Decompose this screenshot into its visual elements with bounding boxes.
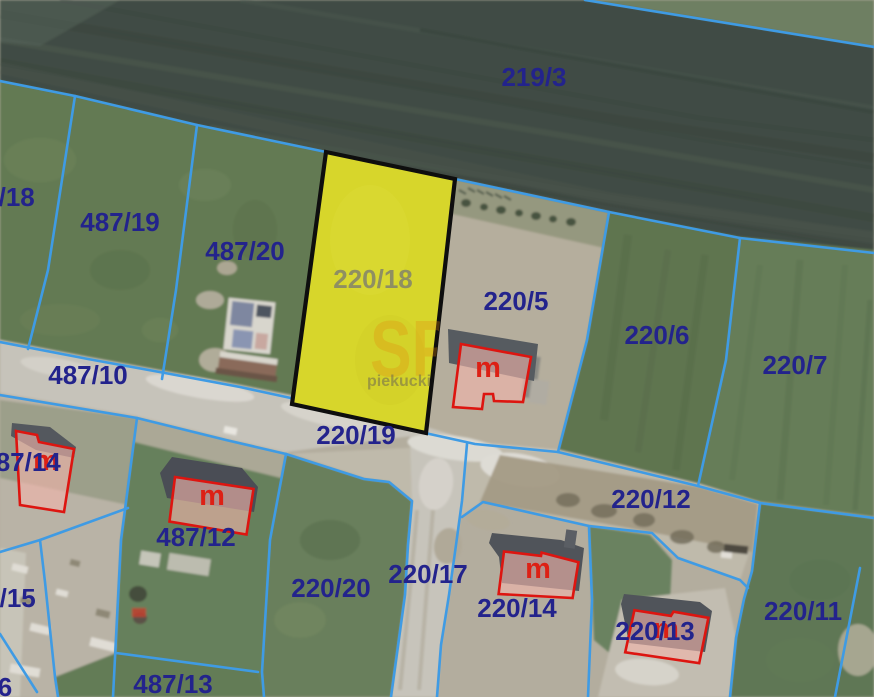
svg-text:487/13: 487/13 [133,669,213,697]
svg-text:220/11: 220/11 [764,596,842,626]
svg-text:220/7: 220/7 [762,350,827,380]
svg-text:m: m [199,480,225,512]
svg-text:220/20: 220/20 [291,573,371,603]
svg-text:m: m [475,352,501,384]
svg-text:219/3: 219/3 [501,62,566,92]
svg-text:220/13: 220/13 [615,616,695,646]
svg-text:220/14: 220/14 [477,593,557,623]
svg-text:6: 6 [0,672,12,697]
svg-text:220/18: 220/18 [333,264,413,294]
svg-text:487/14: 487/14 [0,447,61,477]
svg-text:220/19: 220/19 [316,420,396,450]
svg-text:220/5: 220/5 [483,286,548,316]
svg-text:piekucki: piekucki [367,373,431,390]
svg-text:487/12: 487/12 [156,522,236,552]
svg-text:m: m [525,553,551,585]
svg-text:487/10: 487/10 [48,360,128,390]
svg-text:220/17: 220/17 [388,559,468,589]
svg-text:487/19: 487/19 [80,207,160,237]
svg-text:487/15: 487/15 [0,583,36,613]
svg-text:220/6: 220/6 [624,320,689,350]
svg-text:487/20: 487/20 [205,236,285,266]
svg-text:220/12: 220/12 [611,484,691,514]
svg-text:487/18: 487/18 [0,182,35,212]
